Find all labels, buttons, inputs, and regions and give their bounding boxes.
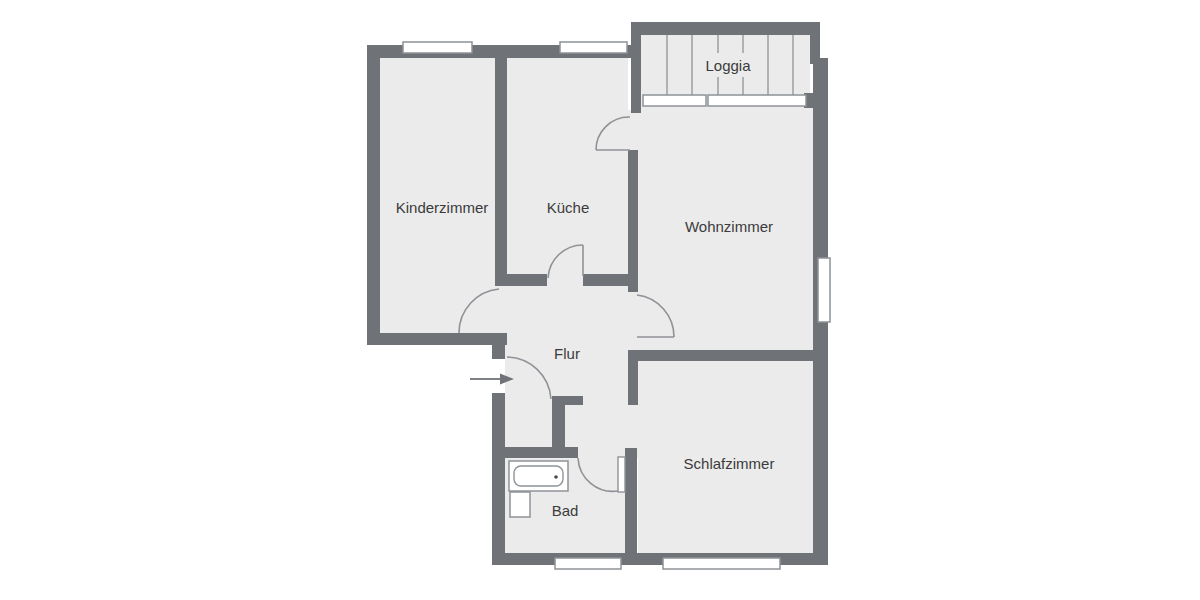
window-schlafzimmer <box>663 558 780 569</box>
label-loggia: Loggia <box>705 57 751 74</box>
wall-kinderzimmer-bottom <box>367 333 507 345</box>
wall-kinderzimmer-kueche <box>495 58 507 278</box>
wall-loggia-top <box>631 22 820 35</box>
wall-kueche-wohnzimmer <box>628 150 638 292</box>
label-kueche: Küche <box>547 199 590 216</box>
window-loggia-right <box>708 95 806 106</box>
window-kinderzimmer <box>403 42 472 53</box>
label-kinderzimmer: Kinderzimmer <box>396 199 489 216</box>
floor-plan: Kinderzimmer Küche Wohnzimmer Loggia Flu… <box>0 0 1200 600</box>
wall-flur-stub-stem <box>552 396 565 447</box>
wall-outer-left <box>367 45 380 345</box>
washbasin <box>510 492 530 517</box>
wall-bad-schlafzimmer <box>625 448 637 553</box>
wall-kueche-flur-right <box>583 274 628 286</box>
window-bad <box>555 558 621 569</box>
door-leaf-bad <box>618 457 625 492</box>
window-wohnzimmer <box>818 258 830 322</box>
floor-flur <box>505 274 638 458</box>
wall-bad-north <box>505 447 578 458</box>
label-schlafzimmer: Schlafzimmer <box>684 455 775 472</box>
window-kueche <box>560 42 627 53</box>
wall-loggia-left <box>631 22 641 113</box>
floor-schlafzimmer <box>638 350 813 553</box>
wall-wohnzimmer-schlafzimmer <box>628 350 813 361</box>
wall-flur-schlafzimmer <box>628 358 638 405</box>
wall-loggia-right <box>810 22 820 64</box>
label-flur: Flur <box>554 345 580 362</box>
wall-entry-step <box>492 345 505 359</box>
wall-outer-left-lower <box>492 393 505 565</box>
label-bad: Bad <box>552 502 579 519</box>
window-loggia-left <box>643 95 706 106</box>
wall-kueche-flur-left <box>495 274 547 286</box>
bathtub-drain <box>554 475 558 479</box>
floor-plan-page: Kinderzimmer Küche Wohnzimmer Loggia Flu… <box>0 0 1200 600</box>
label-wohnzimmer: Wohnzimmer <box>685 218 773 235</box>
room-floors <box>380 30 813 553</box>
